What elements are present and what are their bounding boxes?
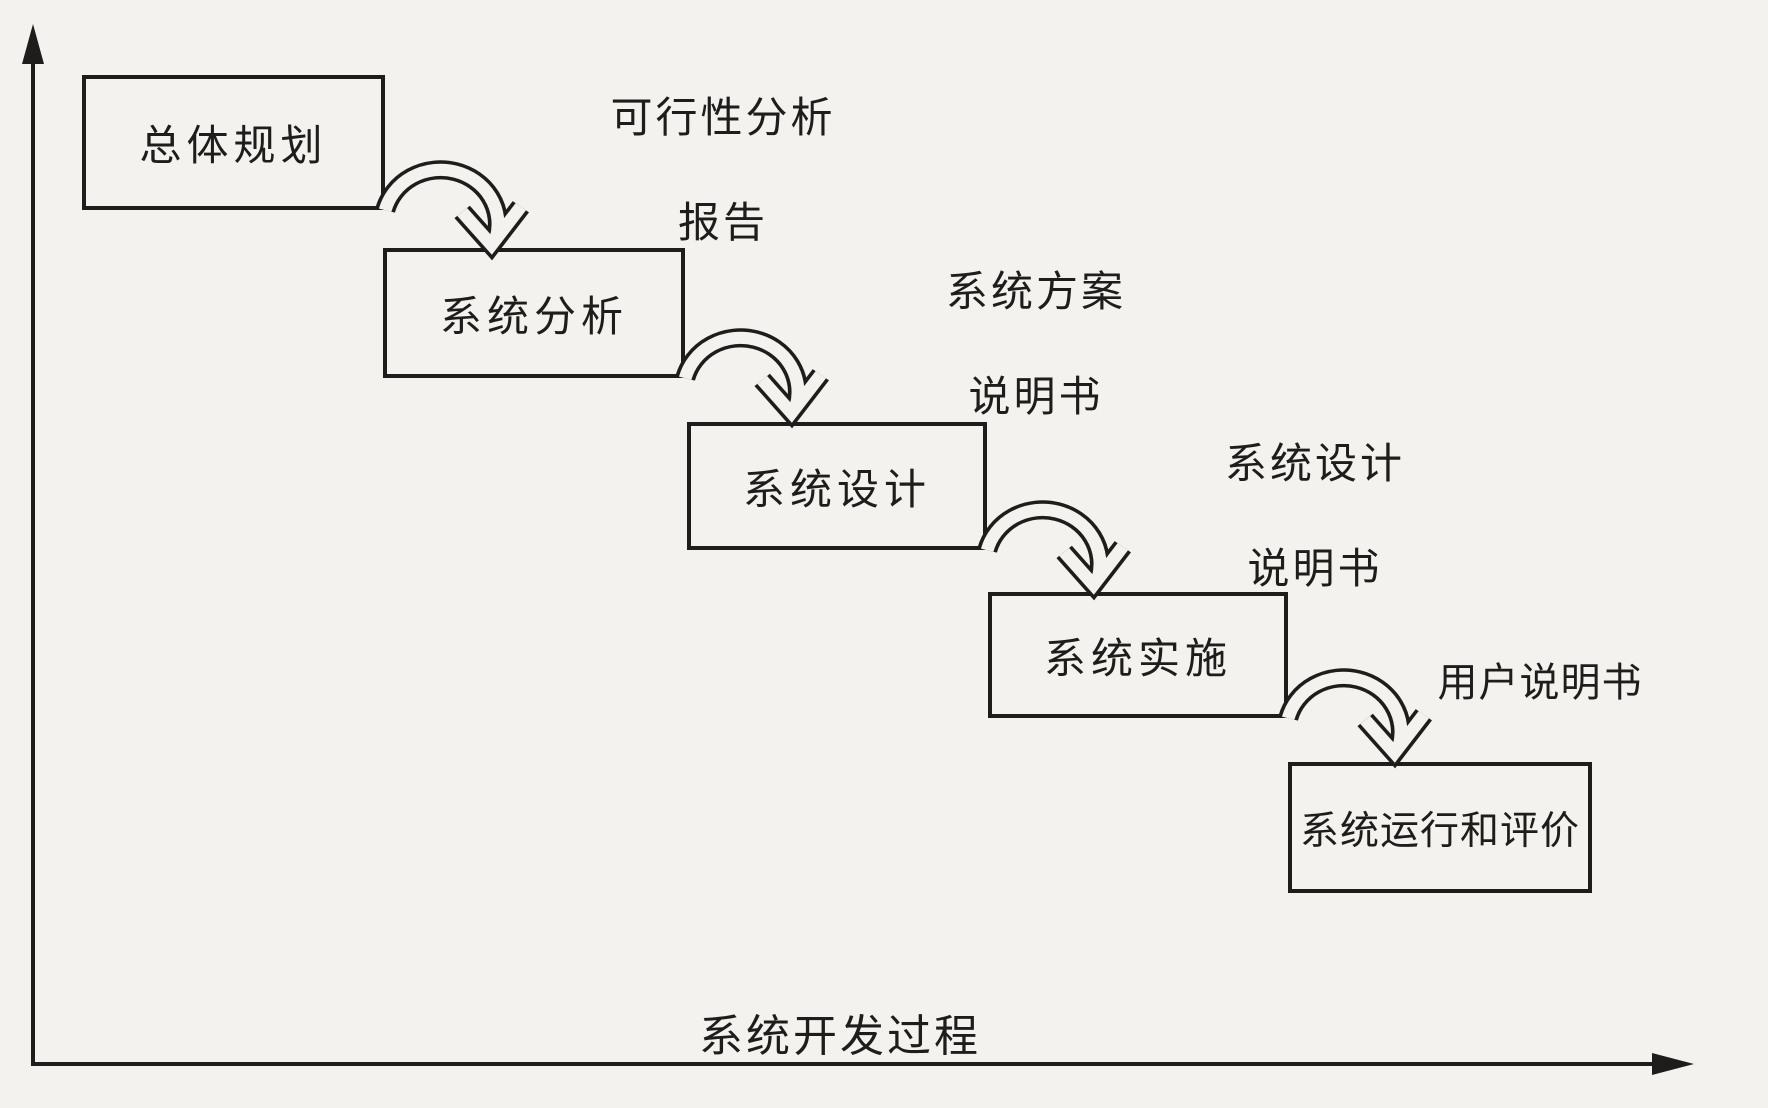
deliverable-label-user-manual: 用户说明书 — [1360, 650, 1720, 708]
flow-arrow-icon — [978, 467, 1143, 597]
stage-label: 系统设计 — [743, 456, 931, 517]
stage-label: 系统实施 — [1044, 625, 1232, 686]
stage-label: 总体规划 — [139, 112, 327, 173]
stage-label: 系统分析 — [440, 283, 628, 344]
flow-arrow-icon — [676, 295, 841, 425]
diagram-canvas: 总体规划 系统分析 系统设计 系统实施 系统运行和评价 可行性分析 — [0, 0, 1768, 1108]
deliverable-line: 系统方案 — [856, 258, 1216, 319]
stage-box-system-operation-evaluation: 系统运行和评价 — [1288, 762, 1592, 893]
deliverable-line: 用户说明书 — [1360, 650, 1720, 708]
stage-box-system-design: 系统设计 — [687, 422, 987, 550]
stage-label: 系统运行和评价 — [1300, 800, 1580, 856]
stage-box-overall-planning: 总体规划 — [82, 75, 385, 210]
stage-box-system-analysis: 系统分析 — [383, 248, 685, 378]
deliverable-label-system-plan-spec: 系统方案 说明书 — [856, 258, 1216, 424]
deliverable-line: 系统设计 — [1135, 430, 1495, 491]
y-axis-line — [31, 56, 35, 1066]
y-axis-arrowhead-icon — [22, 24, 44, 64]
deliverable-line: 可行性分析 — [543, 84, 903, 145]
flow-arrow-icon — [376, 127, 541, 257]
x-axis-title: 系统开发过程 — [640, 1000, 1040, 1064]
stage-box-system-implementation: 系统实施 — [988, 592, 1288, 718]
deliverable-line: 说明书 — [1135, 535, 1495, 596]
deliverable-line: 报告 — [543, 189, 903, 250]
deliverable-label-system-design-spec: 系统设计 说明书 — [1135, 430, 1495, 596]
x-axis-arrowhead-icon — [1652, 1053, 1694, 1075]
deliverable-label-feasibility-report: 可行性分析 报告 — [543, 84, 903, 250]
deliverable-line: 说明书 — [856, 363, 1216, 424]
